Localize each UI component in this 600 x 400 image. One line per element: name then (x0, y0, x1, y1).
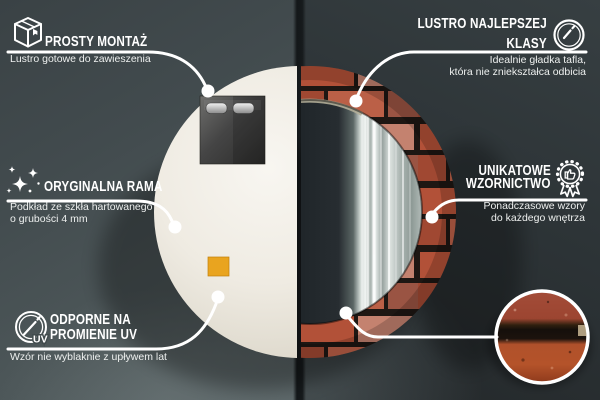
title-text: PROMIENIE UV (50, 328, 137, 343)
callout-subtitle-prosty-montaz: Lustro gotowe do zawieszenia (10, 54, 151, 66)
callout-subtitle-lustro-klasy: Idealnie gładka tafla, która nie znieksz… (449, 55, 586, 78)
title-text: ORYGINALNA RAMA (44, 177, 162, 196)
title-text: KLASY (507, 34, 547, 54)
product-infographic: PROSTY MONTAŻ Lustro gotowe do zawieszen… (0, 0, 600, 400)
plate-hanger-slot (206, 103, 227, 114)
callout-subtitle-unikatowe: Ponadczasowe wzory do każdego wnętrza (483, 201, 585, 224)
title-text: WZORNICTWO (466, 177, 551, 190)
subtitle-line: Podkład ze szkła hartowanego (10, 202, 152, 214)
title-text: PROSTY MONTAŻ (45, 32, 147, 51)
callout-title-lustro-klasy: LUSTRO NAJLEPSZEJ KLASY (347, 14, 547, 54)
uv-protection-icon: UV (12, 308, 52, 348)
package-box-icon (10, 14, 46, 50)
callout-dot (169, 221, 182, 234)
mounting-plate (200, 96, 265, 164)
callout-title-prosty-montaz: PROSTY MONTAŻ (45, 32, 176, 51)
callout-dot (350, 95, 363, 108)
callout-title-unikatowe: UNIKATOWE WZORNICTWO (351, 164, 551, 190)
callout-dot (340, 307, 353, 320)
callout-icon-wrap (553, 159, 587, 199)
callout-title-oryginalna-rama: ORYGINALNA RAMA (44, 177, 196, 196)
callout-top-left (10, 14, 46, 50)
callout-mid-left (5, 164, 43, 198)
callout-title-odporne: ODPORNE NA PROMIENIE UV (50, 313, 162, 342)
subtitle-line: która nie zniekształca odbicia (449, 67, 586, 79)
subtitle-line: o grubości 4 mm (10, 214, 152, 226)
title-text: LUSTRO NAJLEPSZEJ (418, 14, 547, 34)
sparkles-icon (5, 164, 43, 198)
round-mirror-icon (550, 16, 588, 54)
callout-subtitle-odporne: Wzór nie wyblaknie z upływem lat (10, 352, 167, 364)
award-badge-icon (553, 159, 587, 199)
callout-subtitle-oryginalna-rama: Podkład ze szkła hartowanego o grubości … (10, 202, 152, 225)
orange-sticker (208, 257, 229, 276)
callout-dot (212, 291, 225, 304)
texture-detail-circle (496, 291, 588, 383)
callout-icon-wrap (550, 16, 588, 54)
subtitle-line: do każdego wnętrza (483, 213, 585, 225)
plate-hanger-slot (233, 103, 254, 114)
callout-dot (202, 85, 215, 98)
callout-bottom-left: UV (12, 308, 52, 348)
uv-label: UV (33, 334, 48, 346)
subtitle-line: Idealnie gładka tafla, (449, 55, 586, 67)
callout-dot (426, 211, 439, 224)
subtitle-line: Ponadczasowe wzory (483, 201, 585, 213)
